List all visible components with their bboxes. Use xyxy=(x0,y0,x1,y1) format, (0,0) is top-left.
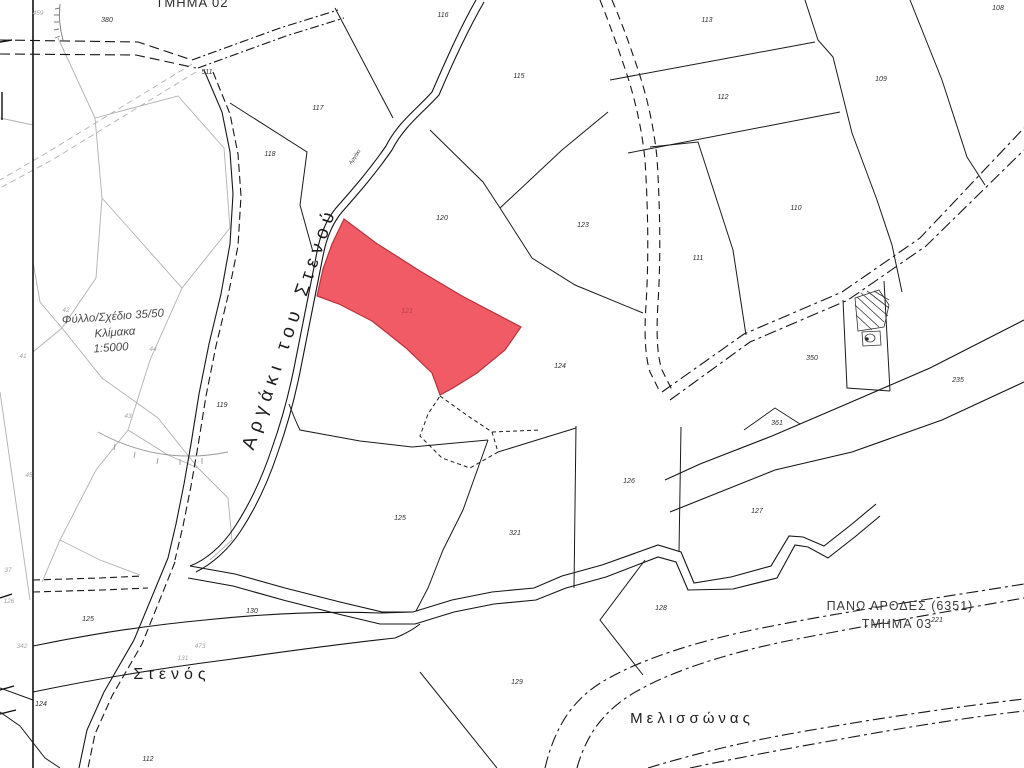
parcel-number: 361 xyxy=(771,420,783,427)
parcel-number: 129 xyxy=(511,679,523,686)
adjacent-number: 41 xyxy=(19,353,27,360)
parcel-number: 120 xyxy=(436,215,448,222)
highlighted-parcel[interactable] xyxy=(317,219,521,395)
stream-small-label: Αργάκι xyxy=(347,148,363,167)
parcel-number: 321 xyxy=(509,530,521,537)
scarp-symbol xyxy=(54,4,63,40)
parcel-number: 111 xyxy=(693,255,704,262)
parcel-number: 108 xyxy=(992,5,1004,12)
parcel-number: 125 xyxy=(82,616,94,623)
parcel-number: 124 xyxy=(554,363,566,370)
parcel-number: 117 xyxy=(312,105,324,112)
adjacent-number: 126 xyxy=(4,598,15,605)
parcel-number: 127 xyxy=(751,508,764,515)
parcel-boundaries xyxy=(0,0,985,768)
parcel-number: 126 xyxy=(623,478,635,485)
highlighted-parcel-group: 121 xyxy=(317,219,521,395)
parcel-number: 124 xyxy=(35,701,47,708)
parcel-number: 128 xyxy=(655,605,667,612)
parcel-number: 112 xyxy=(717,94,728,101)
parcel-number: 110 xyxy=(790,205,801,212)
building-symbol xyxy=(855,290,889,346)
adjacent-number: 459 xyxy=(33,10,44,17)
parcel-number: 112 xyxy=(142,756,153,763)
parcel-number: 130 xyxy=(246,608,258,615)
adjacent-number: 44 xyxy=(149,346,157,353)
map-canvas[interactable]: 121 ΤΜΗΜΑ 02 Φύλλο/Σχέδιο 35/50 Κλίμακα … xyxy=(0,0,1024,768)
section-02-label: ΤΜΗΜΑ 02 xyxy=(155,0,228,10)
parcel-number: 113 xyxy=(701,17,712,24)
parcel-number: 109 xyxy=(875,76,887,83)
parcel-number: 115 xyxy=(513,73,524,80)
parcel-number: 118 xyxy=(264,151,275,158)
parcel-number: 123 xyxy=(577,222,589,229)
parcel-number: 119 xyxy=(216,402,227,409)
dashed-parcel-outline xyxy=(420,396,540,468)
village-name-label: ΠΑΝΩ ΑΡΟΔΕΣ (6351) xyxy=(827,599,974,613)
parcel-number: 511 xyxy=(201,69,212,76)
adjacent-number: 131 xyxy=(178,655,189,662)
sheet-border-line xyxy=(0,0,33,768)
parcel-number: 380 xyxy=(101,17,113,24)
adjacent-number: 473 xyxy=(195,643,206,650)
adjacent-number: 342 xyxy=(17,643,28,650)
parcel-number: 235 xyxy=(951,377,964,384)
parcel-number: 350 xyxy=(806,355,818,362)
highlighted-parcel-number: 121 xyxy=(401,308,413,315)
adjacent-number: 37 xyxy=(4,567,12,574)
sheet-number-label: Φύλλο/Σχέδιο 35/50 xyxy=(61,307,164,326)
adjacent-number: 45 xyxy=(25,472,33,479)
scale-value-label: 1:5000 xyxy=(93,341,130,355)
locality-melissonas-label: Μελισσώνας xyxy=(630,710,754,727)
adjacent-number: 42 xyxy=(62,307,70,314)
parcel-number-labels: 380 511 116 115 117 118 120 123 113 112 … xyxy=(35,5,1004,763)
parcel-number: 125 xyxy=(394,515,406,522)
cadastral-map: 121 ΤΜΗΜΑ 02 Φύλλο/Σχέδιο 35/50 Κλίμακα … xyxy=(0,0,1024,768)
parcel-number: 116 xyxy=(437,12,448,19)
section-03-label: ΤΜΗΜΑ 03 xyxy=(862,617,933,631)
parcel-number: 221 xyxy=(930,617,943,624)
adjacent-number: 43 xyxy=(124,413,132,420)
roads-dashed xyxy=(0,0,1024,768)
locality-stenos-label: Στενός xyxy=(133,666,210,683)
bottom-stream-lines xyxy=(33,320,1024,692)
scale-word-label: Κλίμακα xyxy=(94,325,136,340)
